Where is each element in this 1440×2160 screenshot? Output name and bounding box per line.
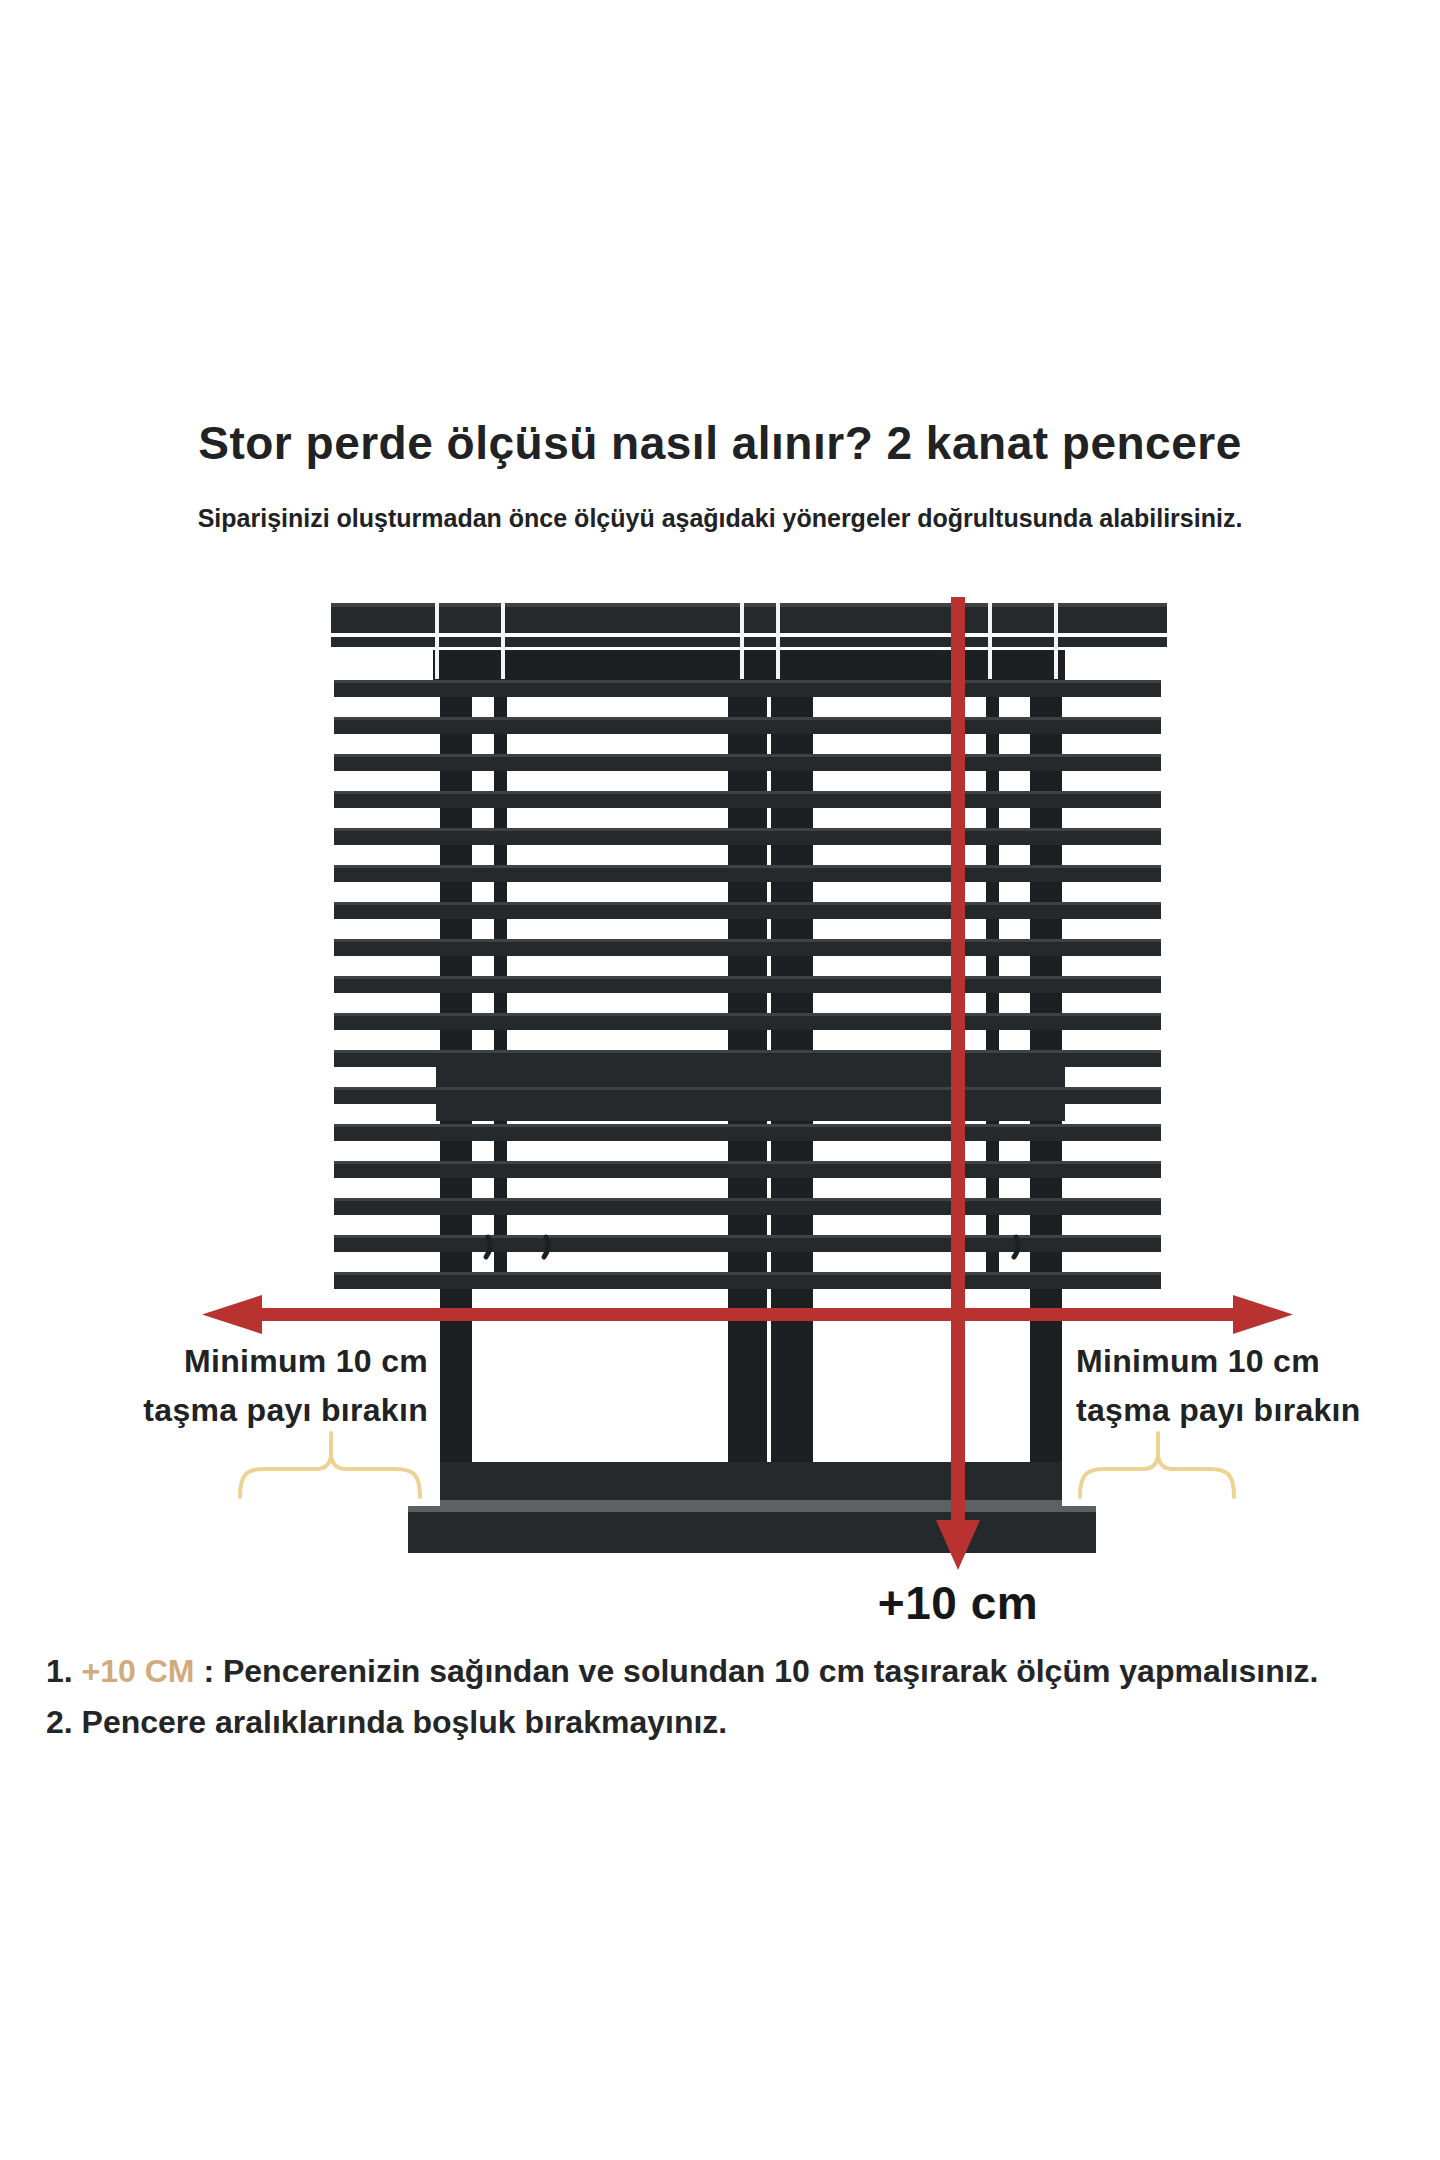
right-overhang-label-line1: Minimum 10 cm <box>1076 1337 1440 1386</box>
left-overhang-brace <box>240 1433 420 1497</box>
right-overhang-brace <box>1080 1433 1234 1497</box>
note-2-number: 2. <box>46 1704 73 1740</box>
note-1-number: 1. <box>46 1653 73 1689</box>
vertical-arrow-label: +10 cm <box>828 1576 1088 1630</box>
note-2-text: Pencere aralıklarında boşluk bırakmayını… <box>82 1704 728 1740</box>
right-overhang-label: Minimum 10 cm taşma payı bırakın <box>1076 1337 1440 1435</box>
left-overhang-label: Minimum 10 cm taşma payı bırakın <box>60 1337 428 1435</box>
note-2: 2. Pencere aralıklarında boşluk bırakmay… <box>46 1697 1426 1748</box>
left-overhang-label-line2: taşma payı bırakın <box>60 1386 428 1435</box>
right-overhang-label-line2: taşma payı bırakın <box>1076 1386 1440 1435</box>
notes: 1. +10 CM : Pencerenizin sağından ve sol… <box>46 1646 1426 1748</box>
window-blind-diagram <box>0 0 1440 2160</box>
note-1-separator: : <box>195 1653 223 1689</box>
left-overhang-label-line1: Minimum 10 cm <box>60 1337 428 1386</box>
note-1-text: Pencerenizin sağından ve solundan 10 cm … <box>223 1653 1319 1689</box>
note-1: 1. +10 CM : Pencerenizin sağından ve sol… <box>46 1646 1426 1697</box>
note-1-highlight: +10 CM <box>82 1653 195 1689</box>
infographic-page: Stor perde ölçüsü nasıl alınır? 2 kanat … <box>0 0 1440 2160</box>
